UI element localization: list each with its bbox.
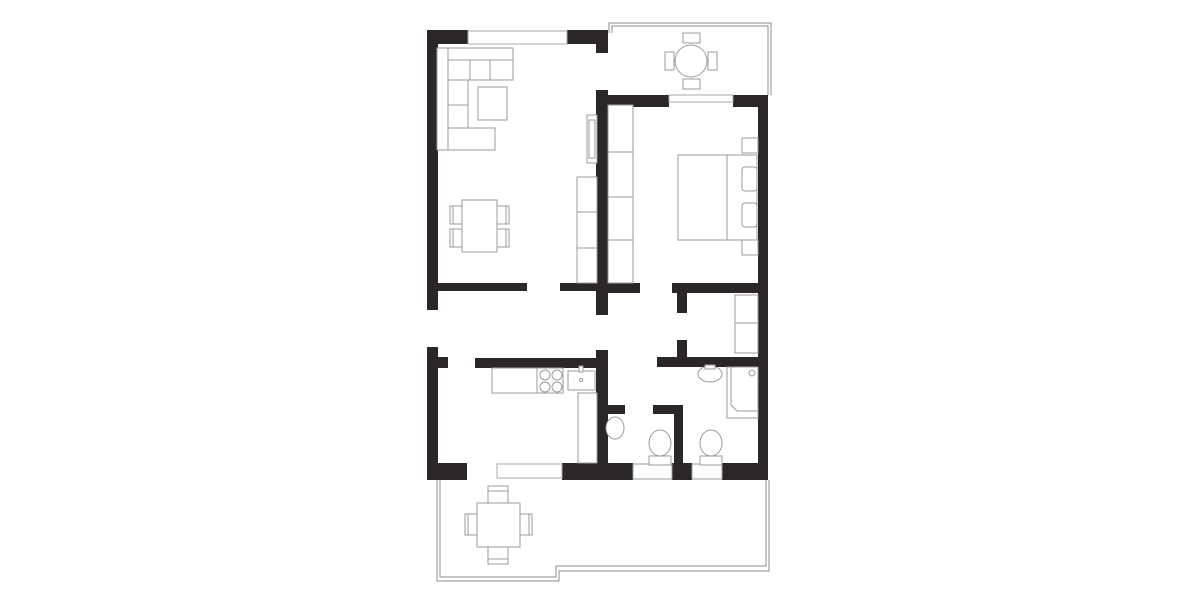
tv-unit-inner — [589, 120, 595, 158]
dining-chair-3 — [497, 206, 509, 224]
floor-plan-drawing — [427, 23, 771, 581]
wall-left-lower — [427, 347, 438, 480]
wall-bottom-b — [562, 463, 633, 480]
bathroom-toilet-bowl — [700, 430, 722, 456]
wall-right — [758, 95, 768, 480]
bed-pillow-1 — [742, 167, 757, 191]
wall-living-bottom-b — [560, 283, 596, 291]
stove-burner-3 — [540, 382, 550, 392]
wall-closet-stub-lower — [677, 340, 687, 357]
sofa-coffee-table — [478, 87, 507, 120]
balcony-chair-left — [665, 52, 674, 70]
wall-kitchen-stub-left — [438, 357, 448, 368]
sofa-seat-bottom — [448, 128, 495, 150]
wall-living-bottom-a — [438, 283, 527, 291]
wc-sink — [606, 417, 624, 439]
kitchen-sink — [568, 371, 595, 390]
bathroom-sink-tap — [705, 365, 715, 369]
dining-chair-1 — [450, 206, 462, 224]
balcony-chair-top — [683, 33, 700, 43]
niche-wc-toilet — [633, 464, 672, 479]
wall-bottom-d — [722, 463, 768, 480]
bathroom-toilet-tank — [700, 456, 722, 465]
terrace-chair-top — [488, 486, 508, 503]
sideboard — [577, 177, 597, 283]
wall-bedroom-bottom-left — [608, 283, 640, 293]
wc-toilet-tank — [649, 456, 671, 465]
dining-chair-4 — [497, 229, 509, 247]
wall-left-upper — [427, 30, 438, 310]
balcony-table — [675, 45, 707, 77]
floor-plan-page — [0, 0, 1200, 600]
balcony-chair-right — [708, 52, 717, 70]
wall-central-lower — [596, 350, 608, 480]
wall-central-top — [596, 30, 608, 53]
dining-chair-2 — [450, 229, 462, 247]
hall-wardrobe — [608, 105, 633, 283]
wall-wc1-stub-left — [608, 405, 625, 414]
wall-kitchen-top — [475, 358, 608, 368]
window-bedroom-sill — [669, 95, 733, 102]
terrace-chair-left — [465, 514, 477, 535]
nightstand-1 — [742, 138, 758, 153]
terrace-chair-bottom — [488, 547, 508, 564]
wall-central-upper — [596, 90, 608, 315]
window-living-top — [468, 31, 567, 44]
stove-burner-4 — [552, 382, 562, 392]
stove-burner-1 — [540, 370, 550, 380]
kitchen-counter-right — [578, 393, 597, 463]
shower-drain — [749, 370, 755, 376]
apartment-floor-plan — [0, 0, 1200, 600]
wall-wc1-stub-right — [653, 405, 683, 414]
nightstand-2 — [742, 240, 758, 255]
balcony-chair-bottom — [683, 79, 700, 89]
niche-bathroom-toilet — [692, 464, 722, 479]
closet-shelf — [735, 295, 758, 353]
terrace-table — [477, 503, 520, 547]
dining-table — [462, 200, 497, 252]
wall-bottom-a — [427, 463, 467, 480]
wall-bedroom-bottom-right — [672, 283, 758, 293]
wall-bottom-c — [672, 463, 692, 480]
wall-closet-stub-upper — [677, 293, 687, 313]
bed-pillow-2 — [742, 203, 757, 227]
sofa-seat-row — [448, 60, 513, 80]
sofa-back-left — [437, 48, 448, 150]
door-terrace-slider — [497, 464, 562, 478]
stove-burner-2 — [552, 370, 562, 380]
wc-toilet-bowl — [649, 430, 671, 456]
kitchen-sink-tap — [579, 366, 583, 372]
terrace-chair-right — [520, 514, 532, 535]
